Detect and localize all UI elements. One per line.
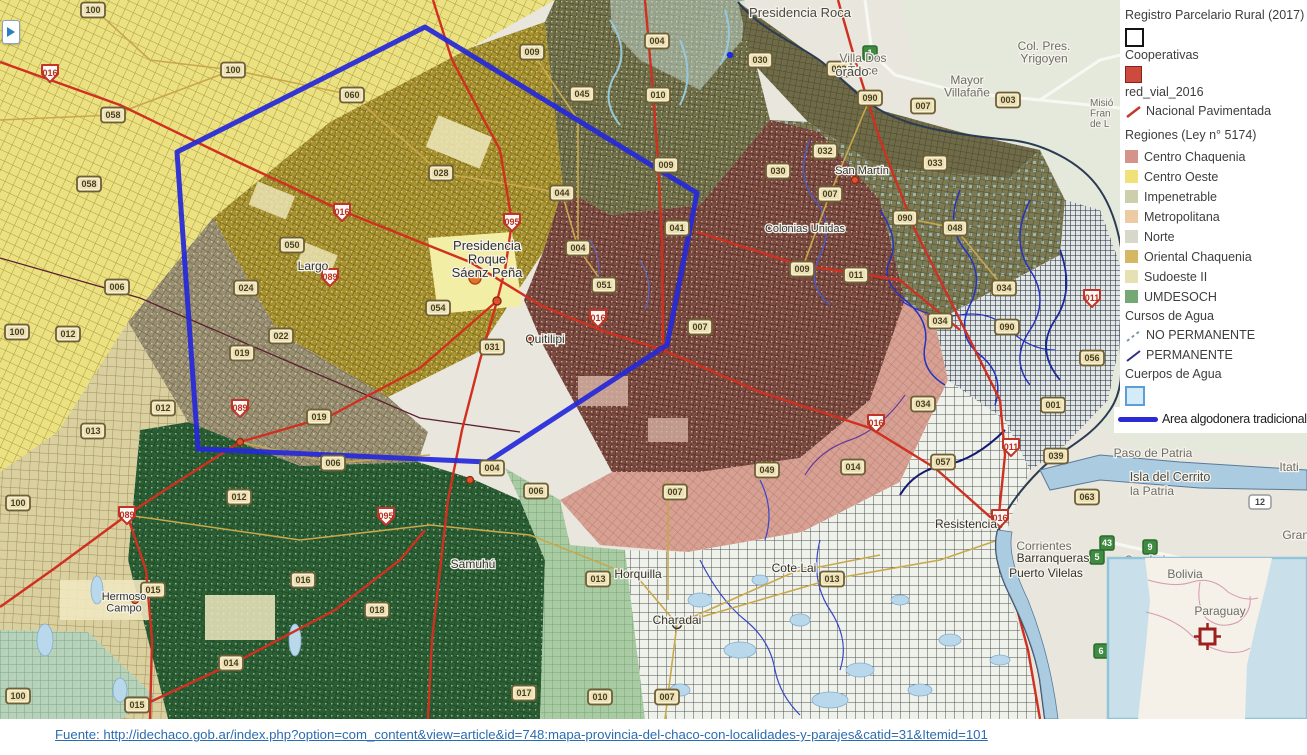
svg-text:051: 051 — [596, 280, 611, 290]
route-shield: 063 — [1075, 490, 1099, 505]
route-shield: 007 — [688, 320, 712, 335]
route-shield: 010 — [646, 88, 670, 103]
svg-text:100: 100 — [9, 327, 24, 337]
source-link[interactable]: Fuente: http://idechaco.gob.ar/index.php… — [55, 727, 988, 742]
map-label: Barranqueras — [1017, 551, 1090, 565]
map-label: Paraguay — [1194, 604, 1245, 618]
svg-text:100: 100 — [85, 5, 100, 15]
map-label: San Martín — [835, 165, 889, 177]
svg-text:004: 004 — [484, 463, 499, 473]
route-shield: 010 — [588, 690, 612, 705]
route-shield: 014 — [841, 460, 865, 475]
route-shield: 9 — [1143, 540, 1157, 554]
route-shield: 054 — [426, 301, 450, 316]
svg-text:019: 019 — [311, 412, 326, 422]
legend-region-row: UMDESOCH — [1125, 287, 1252, 307]
svg-text:056: 056 — [1084, 353, 1099, 363]
area-algodonera-label: Area algodonera tradicional — [1162, 412, 1307, 426]
svg-text:5: 5 — [1094, 552, 1099, 562]
map-label: Resistencia — [935, 517, 997, 531]
map-label: Itati — [1279, 460, 1298, 474]
svg-text:034: 034 — [996, 283, 1011, 293]
svg-text:028: 028 — [433, 168, 448, 178]
route-shield: 009 — [790, 262, 814, 277]
route-shield: 003 — [996, 93, 1020, 108]
svg-text:090: 090 — [999, 322, 1014, 332]
region-label: Sudoeste II — [1144, 270, 1207, 284]
route-shield: 007 — [911, 99, 935, 114]
svg-text:033: 033 — [927, 158, 942, 168]
footer-bar: Fuente: http://idechaco.gob.ar/index.php… — [0, 719, 1307, 755]
route-shield: 006 — [524, 484, 548, 499]
region-color-swatch — [1125, 210, 1138, 223]
route-shield: 039 — [1044, 449, 1068, 464]
map-label: orado — [835, 64, 868, 79]
svg-text:6: 6 — [1098, 646, 1103, 656]
route-shield: 006 — [321, 456, 345, 471]
svg-text:054: 054 — [430, 303, 445, 313]
svg-text:006: 006 — [528, 486, 543, 496]
svg-text:012: 012 — [60, 329, 75, 339]
svg-text:004: 004 — [649, 36, 664, 46]
route-shield: 019 — [230, 346, 254, 361]
route-shield: 058 — [101, 108, 125, 123]
route-shield: 43 — [1100, 536, 1114, 550]
map-label: la Patria — [1130, 484, 1174, 498]
map-label: Paso de Patria — [1114, 446, 1193, 460]
legend-title-cursos: Cursos de Agua — [1125, 309, 1214, 323]
svg-text:022: 022 — [273, 331, 288, 341]
map-label: Col. Pres.Yrigoyen — [1018, 39, 1071, 65]
svg-text:090: 090 — [897, 213, 912, 223]
svg-text:060: 060 — [344, 90, 359, 100]
svg-text:034: 034 — [932, 316, 947, 326]
svg-text:016: 016 — [295, 575, 310, 585]
route-shield: 030 — [748, 53, 772, 68]
route-shield: 034 — [992, 281, 1016, 296]
area-algodonera-legend: Area algodonera tradicional — [1114, 407, 1307, 433]
map-label: Cote Lai — [772, 561, 817, 575]
cuerpos-agua-swatch — [1125, 386, 1145, 406]
route-shield: 012 — [227, 490, 251, 505]
nacional-pavimentada-row: Nacional Pavimentada — [1125, 104, 1271, 119]
svg-text:011: 011 — [1004, 442, 1019, 452]
svg-text:007: 007 — [667, 487, 682, 497]
route-shield: 044 — [550, 186, 574, 201]
svg-text:034: 034 — [915, 399, 930, 409]
svg-text:089: 089 — [232, 403, 247, 413]
svg-text:095: 095 — [378, 511, 393, 521]
svg-text:039: 039 — [1048, 451, 1063, 461]
svg-text:007: 007 — [659, 692, 674, 702]
route-shield: 004 — [480, 461, 504, 476]
svg-text:032: 032 — [817, 146, 832, 156]
route-shield: 048 — [943, 221, 967, 236]
route-shield: 057 — [931, 455, 955, 470]
thick-blue-line-icon — [1118, 417, 1158, 422]
svg-text:100: 100 — [10, 498, 25, 508]
route-shield: 100 — [6, 496, 30, 511]
region-label: Norte — [1144, 230, 1175, 244]
route-shield: 6 — [1094, 644, 1108, 658]
route-shield: 015 — [125, 698, 149, 713]
route-shield: 049 — [755, 463, 779, 478]
route-shield: 013 — [81, 424, 105, 439]
map-canvas[interactable]: 0160580581001000600090040450100090280440… — [0, 0, 1307, 719]
route-shield: 060 — [340, 88, 364, 103]
svg-text:089: 089 — [119, 510, 134, 520]
region-color-swatch — [1125, 230, 1138, 243]
svg-text:090: 090 — [862, 93, 877, 103]
region-label: Centro Chaquenia — [1144, 150, 1245, 164]
route-shield: 007 — [663, 485, 687, 500]
route-shield: 100 — [221, 63, 245, 78]
route-shield: 014 — [219, 656, 243, 671]
route-shield: 028 — [429, 166, 453, 181]
map-label: Largo — [298, 259, 329, 273]
region-color-swatch — [1125, 290, 1138, 303]
svg-text:017: 017 — [516, 688, 531, 698]
region-label: Oriental Chaquenia — [1144, 250, 1252, 264]
region-color-swatch — [1125, 190, 1138, 203]
svg-text:016: 016 — [868, 418, 883, 428]
map-label: Quitilipi — [525, 332, 564, 346]
svg-text:013: 013 — [824, 574, 839, 584]
legend-region-row: Centro Oeste — [1125, 167, 1252, 187]
legend-region-row: Centro Chaquenia — [1125, 147, 1252, 167]
svg-text:007: 007 — [915, 101, 930, 111]
route-shield: 030 — [766, 164, 790, 179]
legend-region-row: Metropolitana — [1125, 207, 1252, 227]
svg-text:030: 030 — [752, 55, 767, 65]
svg-text:016: 016 — [334, 207, 349, 217]
route-shield: 011 — [844, 268, 868, 283]
svg-text:012: 012 — [155, 403, 170, 413]
cooperativas-label: Cooperativas — [1125, 48, 1199, 62]
svg-text:013: 013 — [590, 574, 605, 584]
svg-text:089: 089 — [322, 272, 337, 282]
route-shield: 017 — [512, 686, 536, 701]
region-color-swatch — [1125, 170, 1138, 183]
route-shield: 022 — [269, 329, 293, 344]
svg-text:095: 095 — [504, 217, 519, 227]
svg-text:014: 014 — [223, 658, 238, 668]
svg-text:019: 019 — [234, 348, 249, 358]
region-label: Centro Oeste — [1144, 170, 1218, 184]
route-shield: 019 — [307, 410, 331, 425]
svg-text:007: 007 — [692, 322, 707, 332]
map-label: Puerto Vilelas — [1009, 566, 1083, 580]
route-shield: 009 — [520, 45, 544, 60]
region-color-swatch — [1125, 270, 1138, 283]
svg-text:057: 057 — [935, 457, 950, 467]
route-shield: 016 — [291, 573, 315, 588]
legend-panel: Registro Parcelario Rural (2017) Coopera… — [1120, 0, 1307, 407]
route-shield: 058 — [77, 177, 101, 192]
inset-map: BoliviaParaguay — [1108, 558, 1307, 719]
route-shield: 034 — [911, 397, 935, 412]
cooperativas-swatch — [1125, 28, 1144, 47]
svg-text:048: 048 — [947, 223, 962, 233]
no-permanente-row: NO PERMANENTE — [1125, 328, 1255, 343]
route-shield: 013 — [820, 572, 844, 587]
map-label: Presidencia Roca — [749, 5, 852, 20]
svg-text:100: 100 — [10, 691, 25, 701]
paved-road-line-icon — [1125, 105, 1143, 119]
route-shield: 012 — [56, 327, 80, 342]
route-shield: 004 — [566, 241, 590, 256]
svg-text:010: 010 — [650, 90, 665, 100]
legend-region-list: Centro ChaqueniaCentro OesteImpenetrable… — [1125, 147, 1252, 307]
region-label: Metropolitana — [1144, 210, 1220, 224]
svg-text:024: 024 — [238, 283, 253, 293]
svg-text:018: 018 — [369, 605, 384, 615]
route-shield: 090 — [893, 211, 917, 226]
legend-title-cuerpos: Cuerpos de Agua — [1125, 367, 1222, 381]
panel-expand-button[interactable] — [2, 20, 20, 44]
svg-text:015: 015 — [129, 700, 144, 710]
svg-text:031: 031 — [484, 342, 499, 352]
legend-title-registro: Registro Parcelario Rural (2017) — [1125, 8, 1304, 22]
route-shield: 013 — [586, 572, 610, 587]
route-shield: 100 — [81, 3, 105, 18]
legend-region-row: Oriental Chaquenia — [1125, 247, 1252, 267]
svg-text:004: 004 — [570, 243, 585, 253]
map-label: Charadai — [653, 613, 702, 627]
legend-title-regiones: Regiones (Ley n° 5174) — [1125, 128, 1256, 142]
svg-text:009: 009 — [658, 160, 673, 170]
route-shield: 050 — [280, 238, 304, 253]
svg-text:058: 058 — [105, 110, 120, 120]
svg-text:049: 049 — [759, 465, 774, 475]
dashed-stream-line-icon — [1125, 329, 1143, 343]
svg-text:030: 030 — [770, 166, 785, 176]
svg-text:009: 009 — [524, 47, 539, 57]
map-label: Grand — [1282, 528, 1307, 542]
route-shield: 051 — [592, 278, 616, 293]
svg-text:006: 006 — [109, 282, 124, 292]
svg-text:010: 010 — [592, 692, 607, 702]
map-label: Horquilla — [614, 567, 662, 581]
route-shield: 090 — [858, 91, 882, 106]
route-shield: 12 — [1249, 495, 1271, 509]
svg-text:011: 011 — [1085, 293, 1100, 303]
svg-text:050: 050 — [284, 240, 299, 250]
svg-text:9: 9 — [1147, 542, 1152, 552]
legend-region-row: Impenetrable — [1125, 187, 1252, 207]
region-label: UMDESOCH — [1144, 290, 1217, 304]
svg-text:014: 014 — [845, 462, 860, 472]
svg-text:001: 001 — [1045, 400, 1060, 410]
route-shield: 100 — [5, 325, 29, 340]
svg-text:009: 009 — [794, 264, 809, 274]
svg-text:100: 100 — [225, 65, 240, 75]
svg-text:015: 015 — [145, 585, 160, 595]
route-shield: 007 — [655, 690, 679, 705]
route-shield: 007 — [818, 187, 842, 202]
svg-text:003: 003 — [1000, 95, 1015, 105]
svg-text:041: 041 — [669, 223, 684, 233]
route-shield: 018 — [365, 603, 389, 618]
svg-text:016: 016 — [590, 313, 605, 323]
map-label: Bolivia — [1167, 567, 1203, 581]
svg-text:43: 43 — [1102, 538, 1112, 548]
map-label: HermosoCampo — [102, 591, 147, 614]
route-shield: 056 — [1080, 351, 1104, 366]
region-label: Impenetrable — [1144, 190, 1217, 204]
route-shield: 100 — [6, 689, 30, 704]
svg-text:044: 044 — [554, 188, 569, 198]
svg-text:045: 045 — [574, 89, 589, 99]
svg-text:006: 006 — [325, 458, 340, 468]
svg-text:058: 058 — [81, 179, 96, 189]
route-shield: 041 — [665, 221, 689, 236]
map-label: Isla del Cerrito — [1130, 470, 1211, 484]
map-label: MayorVillafañe — [944, 73, 990, 99]
legend-region-row: Norte — [1125, 227, 1252, 247]
svg-text:063: 063 — [1079, 492, 1094, 502]
route-shield: 090 — [995, 320, 1019, 335]
route-shield: 045 — [570, 87, 594, 102]
route-shield: 032 — [813, 144, 837, 159]
map-label: Samuhú — [451, 557, 496, 571]
svg-text:007: 007 — [822, 189, 837, 199]
legend-region-row: Sudoeste II — [1125, 267, 1252, 287]
svg-text:012: 012 — [231, 492, 246, 502]
stream-line-icon — [1125, 349, 1143, 363]
svg-text:011: 011 — [849, 270, 864, 280]
route-shield: 012 — [151, 401, 175, 416]
svg-text:016: 016 — [42, 68, 57, 78]
svg-text:013: 013 — [85, 426, 100, 436]
route-shield: 004 — [645, 34, 669, 49]
route-shield: 024 — [234, 281, 258, 296]
red-vial-label: red_vial_2016 — [1125, 85, 1204, 99]
route-shield: 033 — [923, 156, 947, 171]
route-shield: 031 — [480, 340, 504, 355]
permanente-row: PERMANENTE — [1125, 348, 1233, 363]
route-shield: 001 — [1041, 398, 1065, 413]
region-color-swatch — [1125, 250, 1138, 263]
route-shield: 006 — [105, 280, 129, 295]
red-vial-swatch — [1125, 66, 1142, 83]
region-color-swatch — [1125, 150, 1138, 163]
route-shield: 009 — [654, 158, 678, 173]
svg-text:12: 12 — [1255, 497, 1265, 507]
map-label: Colonias Unidas — [765, 223, 846, 235]
route-shield: 034 — [928, 314, 952, 329]
route-shield: 5 — [1090, 550, 1104, 564]
arrow-right-icon — [7, 27, 15, 37]
